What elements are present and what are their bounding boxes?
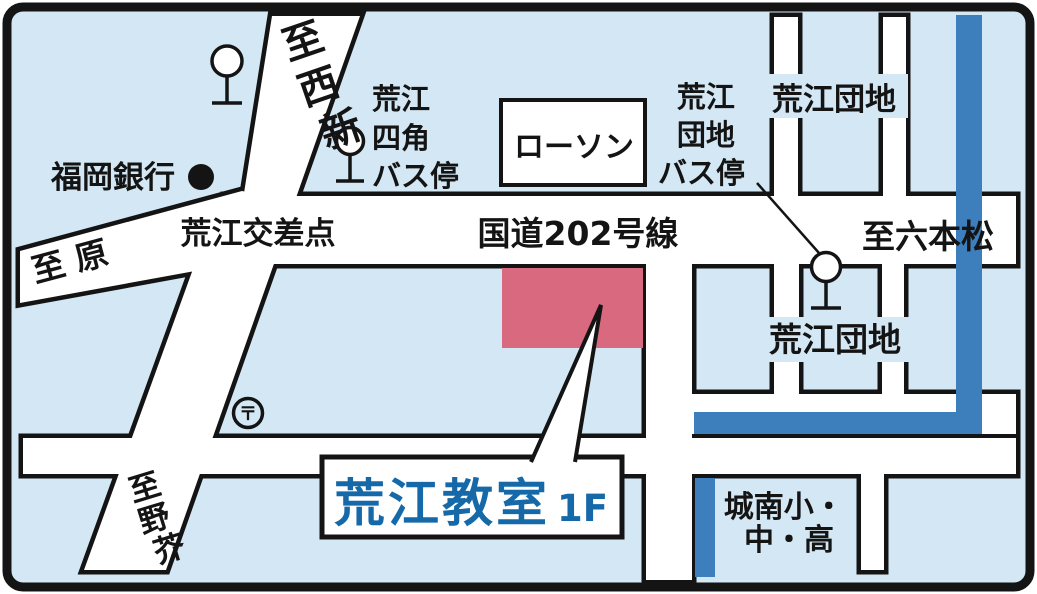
lawson-store: ローソン	[501, 100, 645, 185]
danchi-road-2	[883, 17, 906, 230]
to-ropponmatsu-label: 至六本松	[862, 217, 994, 256]
vertical-road-center	[646, 230, 692, 580]
danchi-label-lower-group: 荒江団地	[757, 317, 911, 362]
bank-marker-dot	[188, 164, 214, 190]
river-south-segment	[695, 478, 715, 577]
post-office-mark: 〒	[239, 404, 257, 425]
classroom-building-block	[502, 268, 643, 348]
lawson-label: ローソン	[514, 130, 634, 165]
intersection-label: 荒江交差点	[181, 216, 336, 252]
school-side-road	[861, 460, 884, 570]
danchi-label-top-group: 荒江団地	[760, 74, 908, 118]
danchi-label-lower: 荒江団地	[769, 320, 901, 359]
danchi-label-top: 荒江団地	[772, 82, 896, 118]
river-horizontal-segment	[694, 412, 982, 434]
classroom-name: 荒江教室	[334, 475, 550, 534]
route-202-label: 国道202号線	[478, 214, 679, 253]
access-map: 〒 ローソン 荒江団地 荒江団地 国道202号線 荒江交差点 至六本松 福岡銀行…	[0, 0, 1037, 594]
map-canvas: 〒 ローソン 荒江団地 荒江団地 国道202号線 荒江交差点 至六本松 福岡銀行…	[0, 0, 1037, 594]
classroom-floor: 1F	[557, 487, 608, 530]
danchi-road-1	[774, 17, 798, 230]
bank-label: 福岡銀行	[50, 160, 175, 196]
